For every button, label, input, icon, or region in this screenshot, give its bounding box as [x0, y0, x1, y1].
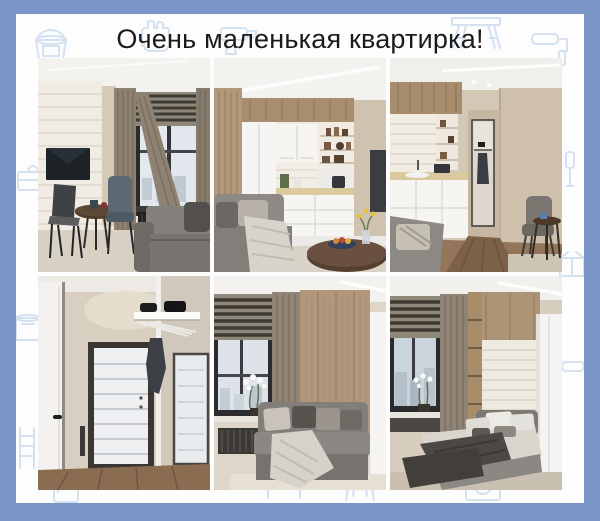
screwdriver-icon	[566, 152, 574, 186]
front-door	[88, 342, 154, 470]
photo-kitchen-to-hallway	[390, 58, 562, 272]
cardboard-box-icon	[560, 252, 584, 276]
page-title: Очень маленькая квартирка!	[16, 23, 584, 55]
photo-grid	[38, 58, 562, 490]
photo-bedroom	[390, 276, 562, 490]
photo-entry-hallway	[38, 276, 210, 490]
paint-can-icon	[16, 315, 40, 340]
window	[390, 296, 440, 418]
collage-page: { "page": { "title": "Очень маленькая кв…	[0, 0, 600, 521]
tv	[46, 148, 90, 180]
kitchen	[390, 82, 468, 238]
photo-kitchen-corner	[214, 58, 386, 272]
ladder-icon	[20, 428, 34, 468]
sofa	[214, 194, 296, 272]
paint-roller-icon	[562, 362, 584, 376]
photo-living-room-tv	[38, 58, 210, 272]
scene-living-room-tv	[38, 58, 210, 272]
curtain	[440, 294, 468, 450]
scene-living-room-sofa	[214, 276, 386, 490]
scene-kitchen-to-hallway	[390, 58, 562, 272]
scene-kitchen-corner	[214, 58, 386, 272]
hall-mirror	[472, 120, 494, 226]
sofa	[254, 402, 370, 488]
photo-living-room-sofa	[214, 276, 386, 490]
scene-bedroom	[390, 276, 562, 490]
content-panel: Очень маленькая квартирка!	[16, 14, 584, 503]
interior-door	[38, 282, 65, 474]
sofa-corner	[390, 216, 444, 272]
blue-border-frame: Очень маленькая квартирка!	[0, 0, 600, 521]
scene-entry-hallway	[38, 276, 210, 490]
